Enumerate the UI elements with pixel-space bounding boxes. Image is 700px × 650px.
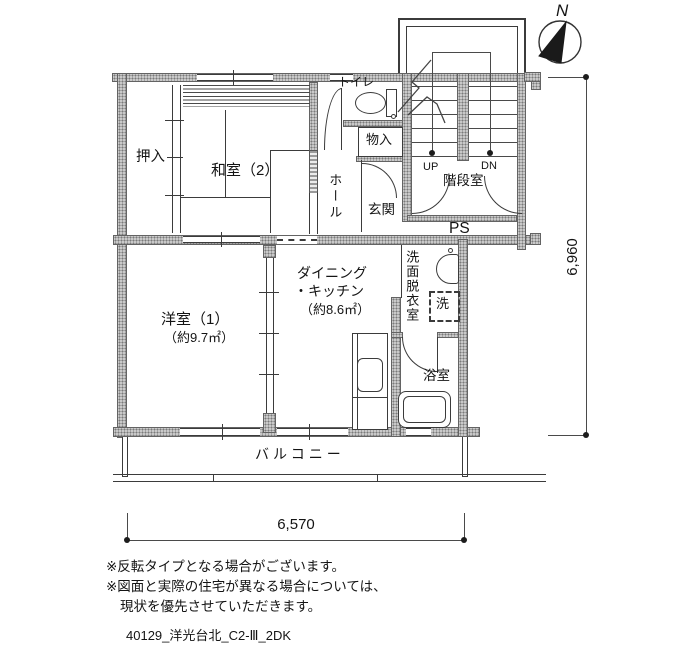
room-label-dk-line2: ・キッチン — [294, 284, 364, 299]
note-line-3: 現状を優先させていただきます。 — [120, 600, 321, 615]
washbasin-icon — [436, 254, 459, 284]
dim-line-bottom — [127, 540, 465, 541]
balcony-rail-line — [113, 481, 546, 482]
wall-left — [117, 73, 127, 438]
dim-width-label: 6,570 — [127, 517, 465, 534]
bathtub-inner — [403, 396, 446, 423]
wall-right-lower — [458, 239, 468, 437]
washbasin-dot — [448, 248, 453, 253]
window-balcony-2 — [277, 428, 348, 436]
window-tick — [221, 232, 222, 247]
dim-dot — [583, 432, 589, 438]
room-label-yoshitsu1-area: （約9.7㎡） — [164, 331, 234, 345]
toilet-door-arc — [324, 88, 342, 150]
note-line-1: ※反転タイプとなる場合がございます。 — [106, 560, 345, 575]
slider-tick — [167, 157, 183, 158]
tatami-line — [225, 110, 226, 197]
bath-door-arc — [402, 337, 437, 372]
room-label-senmen: 洗面脱衣室 — [404, 250, 418, 323]
room-label-oshiire: 押入 — [136, 150, 165, 166]
balcony-post-left — [122, 437, 128, 477]
opening-hall-dk-dashline — [277, 239, 317, 241]
window-balcony-1 — [180, 428, 260, 436]
window-tick — [233, 70, 234, 85]
dim-ext-line — [548, 435, 586, 436]
floor-plan: 6,570 6,960 N 押入 和室（2） トイレ 物入 ホール 玄関 階段室… — [0, 0, 700, 650]
window-bath — [406, 428, 431, 436]
wall-stub-right-mid — [530, 233, 541, 245]
partition-dk-yoshitsu — [266, 245, 274, 427]
partition-tick — [259, 374, 279, 375]
balcony-post-right — [462, 437, 468, 477]
fusuma-pocket — [309, 150, 318, 194]
dim-dot — [583, 74, 589, 80]
room-label-dk-line1: ダイニング — [297, 266, 367, 281]
fusuma-door-hall — [309, 193, 318, 234]
room-label-bath: 浴室 — [423, 369, 450, 384]
compass-north-label: N — [556, 2, 568, 21]
balcony-rail-tick — [377, 474, 378, 482]
washroom-entry-line — [401, 245, 402, 298]
kitchen-counter-divider — [352, 397, 388, 398]
plan-id: 40129_洋光台北_C2-Ⅲ_2DK — [126, 629, 291, 643]
genkan-door-arc — [362, 163, 397, 198]
window-tick — [222, 424, 223, 440]
tatami-line — [270, 150, 310, 151]
dim-dot — [461, 537, 467, 543]
wall-stub-right-top2 — [531, 81, 541, 90]
dim-dot — [124, 537, 130, 543]
washitsu-window-shutter — [183, 85, 310, 107]
stair-up-label: UP — [423, 161, 438, 173]
partition-tick — [259, 333, 279, 334]
stair-dn-dot — [487, 150, 493, 156]
stair-up-dot — [429, 150, 435, 156]
partition-tick — [259, 292, 279, 293]
wall-middle — [113, 235, 535, 245]
kitchen-sink-icon — [357, 358, 383, 392]
note-line-2: ※図面と実際の住宅が異なる場合については、 — [106, 580, 387, 595]
room-label-washitsu2: 和室（2） — [211, 163, 279, 180]
room-label-monoire: 物入 — [366, 133, 392, 147]
dim-ext-line — [548, 77, 586, 78]
wall-washitsu-right — [309, 82, 318, 151]
balcony-rail-tick — [213, 474, 214, 482]
washing-machine-label: 洗 — [429, 297, 456, 311]
partition-stub-top — [263, 245, 276, 258]
slider-tick — [165, 120, 184, 121]
room-label-balcony: バルコニー — [255, 447, 345, 462]
wall-stairwell-right — [517, 73, 526, 250]
stair-break-line — [395, 40, 465, 130]
slider-tick — [165, 195, 184, 196]
dim-line-right — [586, 77, 587, 435]
toilet-icon — [355, 92, 386, 114]
room-label-toilet: トイレ — [338, 76, 374, 89]
balcony-rail-line — [113, 474, 546, 475]
window-tick — [309, 424, 310, 440]
entrance-door-arc-right — [484, 176, 522, 214]
window-top-washitsu — [197, 74, 273, 81]
room-label-hall: ホール — [327, 173, 341, 221]
oshiire-sliding-door — [172, 85, 181, 233]
tatami-line — [180, 197, 270, 198]
partition-stub-bottom — [263, 413, 276, 433]
stair-path-line — [490, 52, 491, 152]
room-label-dk-area: （約8.6㎡） — [300, 303, 370, 317]
wall-toilet-bottom — [343, 120, 403, 127]
stair-dn-label: DN — [481, 160, 497, 172]
room-label-yoshitsu1: 洋室（1） — [161, 312, 229, 329]
room-label-kaidanshitsu: 階段室 — [443, 174, 484, 189]
wall-bath-top-right — [437, 332, 459, 338]
room-label-genkan: 玄関 — [368, 203, 395, 218]
dim-height-label: 6,960 — [565, 222, 585, 292]
room-label-ps: PS — [449, 220, 470, 237]
wall-top — [112, 73, 535, 82]
